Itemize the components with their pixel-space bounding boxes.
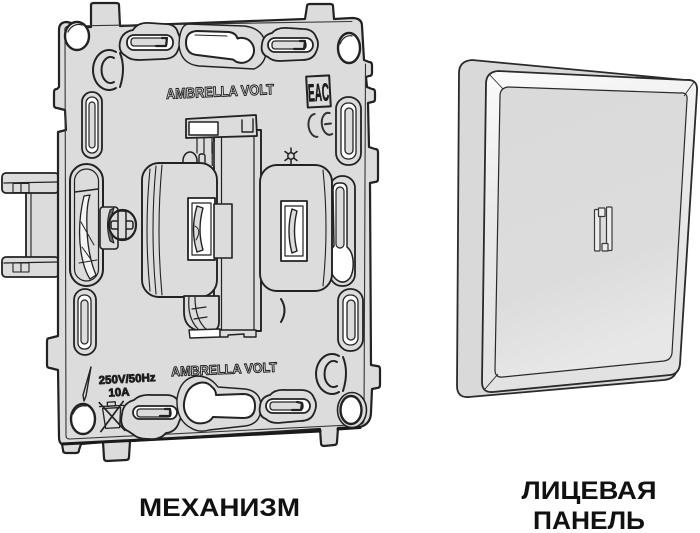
svg-text:10A: 10A [108,387,130,400]
svg-text:EAC: EAC [307,79,330,108]
svg-text:ПАНЕЛЬ: ПАНЕЛЬ [533,507,645,533]
svg-text:МЕХАНИЗМ: МЕХАНИЗМ [139,494,300,522]
svg-text:ЛИЦЕВАЯ: ЛИЦЕВАЯ [522,477,657,505]
